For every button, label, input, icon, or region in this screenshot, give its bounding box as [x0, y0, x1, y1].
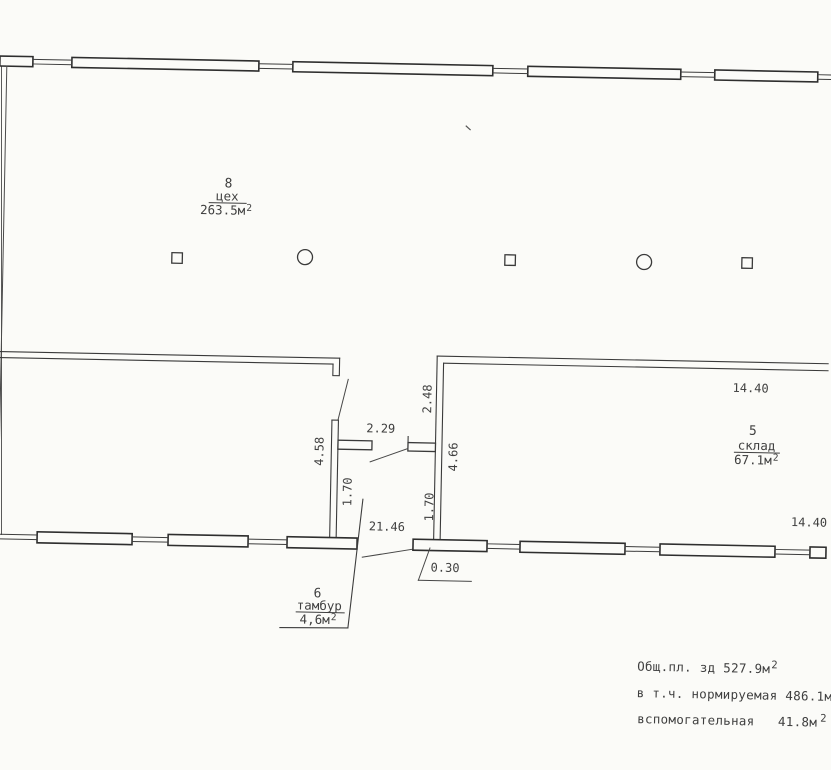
dim-4-58: 4.58: [312, 437, 327, 466]
door-leaf: [338, 379, 348, 420]
wall-pier: [715, 70, 818, 82]
window-segment: [487, 548, 520, 549]
dim-0-30: 0.30: [430, 561, 459, 576]
window-segment: [33, 64, 72, 65]
room-area-storage: 67.1м2: [734, 452, 779, 468]
window-segment: [33, 59, 72, 60]
window-segment: [132, 537, 168, 538]
area-sup: 2: [331, 612, 337, 623]
summary-normalized-area: в т.ч. нормируемая 486.1м2: [637, 683, 831, 704]
window-segment: [775, 554, 810, 555]
summary-sup: 2: [771, 659, 778, 671]
summary-text: вспомогательная 41.8м: [637, 711, 817, 730]
column-square-marker: [742, 258, 753, 269]
room-area-workshop: 263.5м2: [200, 202, 252, 218]
dim-2-48: 2.48: [420, 384, 435, 413]
window-segment: [681, 72, 715, 73]
wall-end-hook: [333, 358, 340, 376]
wall-pier: [293, 62, 493, 76]
wall-pier: [528, 66, 681, 79]
area-summary-block: Общ.пл. зд 527.9м2 в т.ч. нормируемая 48…: [636, 657, 831, 730]
room-name-storage: склад: [738, 437, 776, 453]
dim-4-66: 4.66: [446, 442, 461, 471]
wall-pier: [413, 539, 487, 551]
wall-line: [0, 357, 333, 364]
window-segment: [132, 541, 168, 542]
wall-pier: [287, 537, 357, 549]
window-segment: [681, 77, 715, 78]
bottom-left-wall: [0, 531, 357, 549]
floor-plan-drawing: 8 цех 263.5м2 14.40 5 склад 67.1м2 6 там…: [0, 0, 831, 766]
wall-line: [0, 351, 340, 358]
summary-text: Общ.пл. зд 527.9м: [637, 659, 770, 677]
column-square-marker: [172, 253, 183, 264]
column-circle-marker: [636, 254, 651, 269]
column-circle-marker: [297, 249, 312, 264]
vestibule-slant-wall: [348, 499, 363, 628]
area-sup: 2: [773, 453, 779, 464]
window-segment: [493, 73, 528, 74]
wall-pier: [0, 56, 33, 67]
window-segment: [259, 68, 293, 69]
wall-line: [444, 363, 828, 371]
window-segment: [625, 547, 660, 548]
bottom-right-wall: [413, 539, 826, 558]
room-number-storage: 5: [749, 424, 757, 439]
summary-auxiliary-area: вспомогательная 41.8м2: [637, 709, 827, 730]
summary-total-area: Общ.пл. зд 527.9м2: [637, 657, 778, 677]
column-square-marker: [505, 255, 516, 266]
column-markers: [172, 245, 753, 274]
wall-line: [440, 363, 443, 539]
top-exterior-wall: [0, 56, 831, 82]
window-segment: [0, 534, 37, 535]
leader-line: [418, 580, 471, 581]
wall-line: [437, 356, 828, 364]
window-segment: [487, 544, 520, 545]
window-segment: [248, 544, 287, 545]
wall-line: [330, 420, 332, 537]
window-segment: [248, 539, 287, 540]
area-sup: 2: [246, 203, 252, 214]
door-leaf: [362, 548, 413, 558]
dim-14-40-bottom: 14.40: [791, 515, 827, 530]
wall-pier: [168, 534, 248, 547]
door-jamb-stub: [408, 443, 436, 452]
summary-text: в т.ч. нормируемая 486.1м: [637, 685, 831, 704]
door-leaf: [370, 448, 408, 463]
vestibule-bottom-wall: [280, 627, 348, 629]
wall-pier: [520, 541, 625, 554]
dim-1-70-right: 1.70: [422, 492, 437, 521]
dim-14-40-top: 14.40: [732, 381, 768, 396]
room-area-vestibule: 4,6м2: [299, 611, 336, 627]
window-segment: [625, 551, 660, 552]
wall-line: [336, 420, 338, 537]
area-value: 4,6м: [299, 611, 330, 627]
window-segment: [493, 68, 528, 69]
summary-sup: 2: [820, 713, 827, 725]
dim-2-29: 2.29: [366, 421, 395, 436]
wall-pier: [660, 544, 775, 557]
scan-speck: [466, 126, 470, 130]
wall-pier: [810, 547, 826, 558]
dim-1-70-left: 1.70: [340, 477, 355, 506]
window-segment: [775, 549, 810, 550]
leader-line: [418, 548, 430, 581]
plan-rotated-group: 8 цех 263.5м2 14.40 5 склад 67.1м2 6 там…: [0, 56, 831, 730]
wall-pier: [72, 57, 259, 71]
wall-pier: [37, 532, 132, 545]
window-segment: [259, 64, 293, 65]
door-jamb-stub: [338, 440, 372, 450]
dim-21-46: 21.46: [369, 519, 405, 534]
area-value: 67.1м: [734, 452, 772, 468]
area-value: 263.5м: [200, 202, 246, 218]
window-segment: [0, 539, 37, 540]
left-room-top-wall: [0, 351, 340, 375]
